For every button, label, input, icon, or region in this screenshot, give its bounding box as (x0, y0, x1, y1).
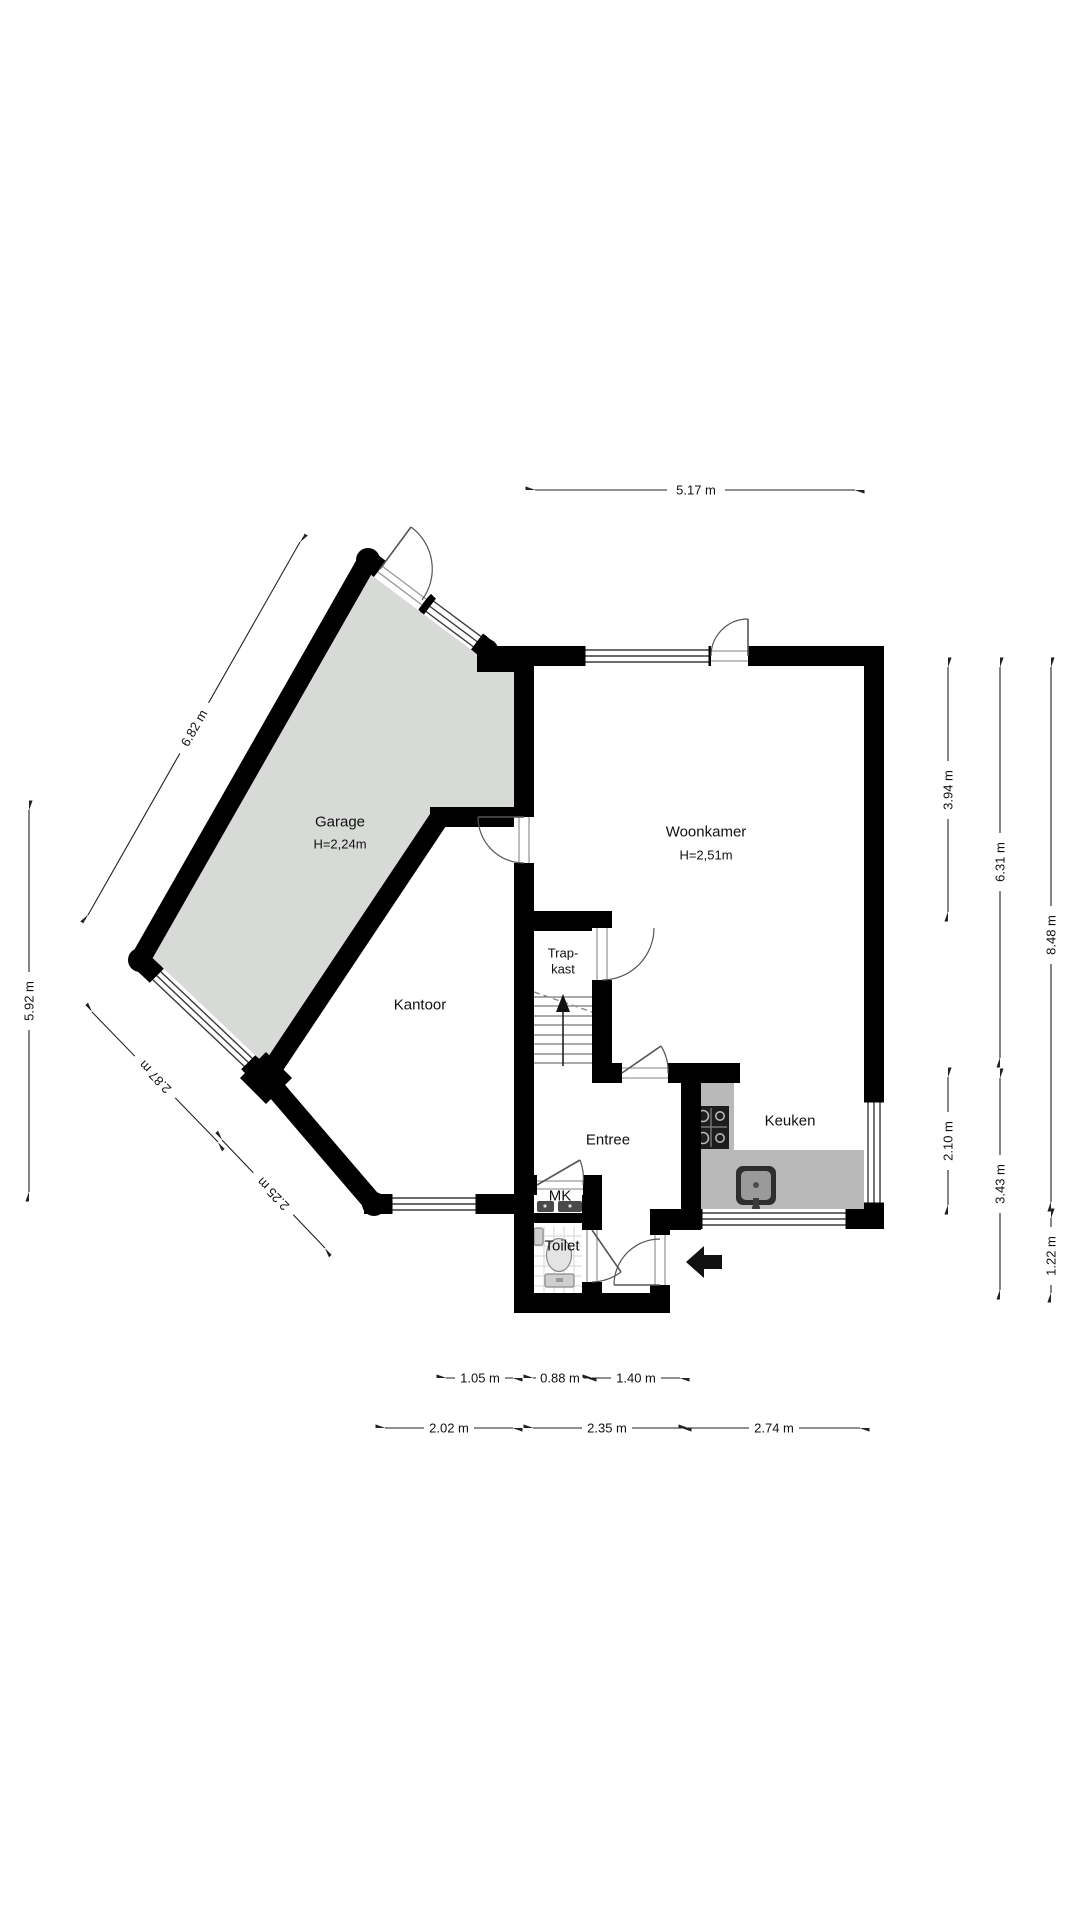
entree-label: Entree (586, 1132, 630, 1149)
svg-text:5.17 m: 5.17 m (676, 483, 716, 498)
door-trapkast (592, 928, 654, 980)
svg-text:5.92 m: 5.92 m (22, 981, 37, 1021)
mk-label: MK (549, 1188, 572, 1205)
garage-height-label: H=2,24m (313, 837, 366, 852)
svg-text:3.94 m: 3.94 m (941, 770, 956, 810)
svg-text:6.82 m: 6.82 m (178, 707, 211, 749)
toilet-room (534, 1226, 582, 1293)
floor-plan-canvas: Garage H=2,24m Woonkamer H=2,51m Kantoor… (0, 0, 1080, 1920)
svg-text:2.10 m: 2.10 m (941, 1121, 956, 1161)
entrance-arrow-icon (686, 1246, 722, 1278)
dim-right-woonkamer: 3.94 m (940, 667, 956, 912)
dim-bottom-202: 2.02 m (385, 1420, 513, 1436)
dim-bottom-274: 2.74 m (688, 1420, 860, 1436)
dim-top: 5.17 m (535, 482, 855, 498)
door-entree-woonkamer (622, 1046, 668, 1083)
trapkast-label-line1: Trap- (548, 946, 579, 961)
dim-left-height: 5.92 m (21, 810, 37, 1192)
window-keuken-south (700, 1209, 848, 1229)
svg-text:0.88 m: 0.88 m (540, 1371, 580, 1386)
toilet-sink-icon (534, 1228, 543, 1245)
svg-text:2.35 m: 2.35 m (587, 1421, 627, 1436)
stairs (534, 988, 592, 1073)
door-front-entrance (614, 1235, 670, 1285)
window-woonkamer-north (583, 646, 711, 666)
svg-text:1.40 m: 1.40 m (616, 1371, 656, 1386)
dim-right-lower: 3.43 m (992, 1078, 1008, 1290)
garage-label: Garage (315, 814, 365, 831)
dim-bottom-235: 2.35 m (533, 1420, 682, 1436)
dim-kantoor-sw: 2.25 m (222, 1140, 325, 1248)
kantoor-label: Kantoor (394, 997, 447, 1014)
kitchen-counter (694, 1083, 864, 1212)
dim-right-keuken: 2.10 m (940, 1077, 956, 1205)
dim-garage-sw: 2.87 m (92, 1012, 218, 1142)
trapkast-label-line2: kast (551, 962, 575, 977)
svg-text:2.87 m: 2.87 m (136, 1057, 174, 1096)
dim-right-total: 8.48 m (1043, 667, 1059, 1202)
door-woonkamer-north (711, 619, 748, 666)
keuken-label: Keuken (765, 1113, 816, 1130)
dim-bottom-105: 1.05 m (446, 1370, 513, 1386)
svg-text:1.05 m: 1.05 m (460, 1371, 500, 1386)
svg-text:6.31 m: 6.31 m (993, 842, 1008, 882)
svg-text:8.48 m: 8.48 m (1044, 915, 1059, 955)
toilet-label: Toilet (544, 1238, 580, 1255)
svg-text:2.25 m: 2.25 m (254, 1174, 292, 1213)
floor-plan-page: Garage H=2,24m Woonkamer H=2,51m Kantoor… (0, 0, 1080, 1920)
window-kantoor-south (390, 1194, 478, 1214)
svg-text:3.43 m: 3.43 m (993, 1164, 1008, 1204)
dim-right-mid: 6.31 m (992, 667, 1008, 1058)
dim-bottom-088: 0.88 m (533, 1370, 587, 1386)
dim-bottom-140: 1.40 m (592, 1370, 680, 1386)
svg-text:2.02 m: 2.02 m (429, 1421, 469, 1436)
window-keuken-east (864, 1100, 884, 1205)
woonkamer-height-label: H=2,51m (679, 848, 732, 863)
woonkamer-label: Woonkamer (666, 824, 747, 841)
svg-text:1.22 m: 1.22 m (1044, 1236, 1059, 1276)
svg-text:2.74 m: 2.74 m (754, 1421, 794, 1436)
dim-right-entry: 1.22 m (1043, 1218, 1059, 1293)
